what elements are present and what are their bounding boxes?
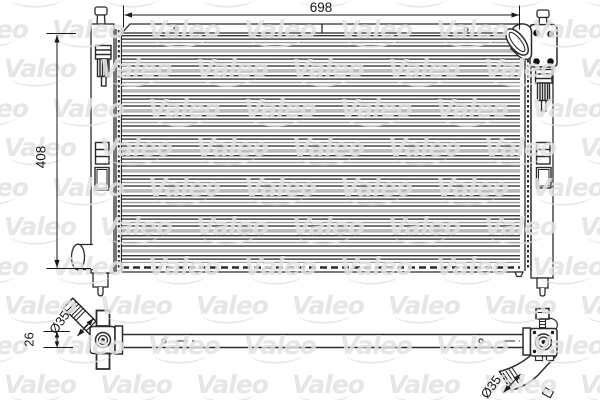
dim-offset: 26: [22, 332, 74, 348]
dimension-layer: 698 408 26 Ø35: [0, 0, 600, 400]
dim-right-pipe: Ø35: [478, 373, 521, 400]
dim-left-pipe: Ø35: [46, 308, 93, 337]
dim-overall-height-label: 408: [34, 146, 49, 169]
dim-core-width: 698: [124, 0, 520, 30]
dim-overall-height: 408: [34, 34, 92, 269]
dim-left-pipe-label: Ø35: [46, 308, 73, 337]
dim-offset-label: 26: [22, 332, 37, 346]
dim-right-pipe-label: Ø35: [478, 373, 505, 400]
dim-core-width-label: 698: [310, 0, 333, 15]
technical-drawing-canvas: ValeoValeoValeoValeoValeoValeoValeoValeo…: [0, 0, 600, 400]
